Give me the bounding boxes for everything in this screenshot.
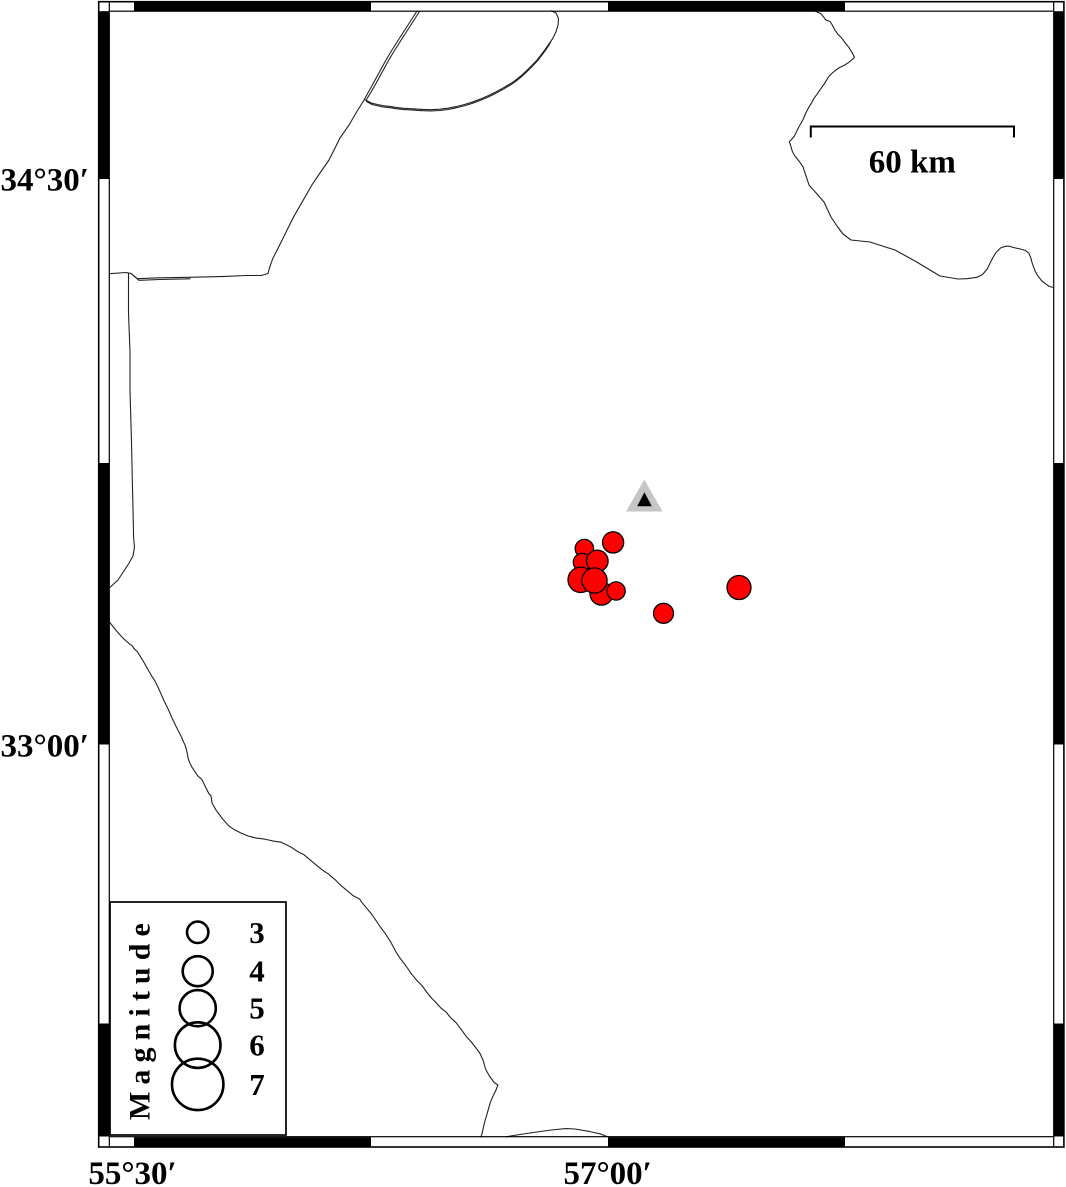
svg-text:55°30′: 55°30′: [88, 1156, 176, 1187]
svg-text:5: 5: [249, 991, 265, 1026]
svg-text:33°00′: 33°00′: [1, 729, 89, 765]
svg-text:6: 6: [249, 1028, 265, 1063]
svg-text:4: 4: [249, 954, 265, 989]
svg-text:57°00′: 57°00′: [563, 1156, 651, 1187]
svg-text:3: 3: [249, 915, 265, 950]
svg-text:60 km: 60 km: [869, 144, 956, 180]
svg-text:Magnitude: Magnitude: [124, 916, 157, 1120]
svg-text:7: 7: [249, 1067, 265, 1102]
svg-text:34°30′: 34°30′: [1, 163, 89, 199]
